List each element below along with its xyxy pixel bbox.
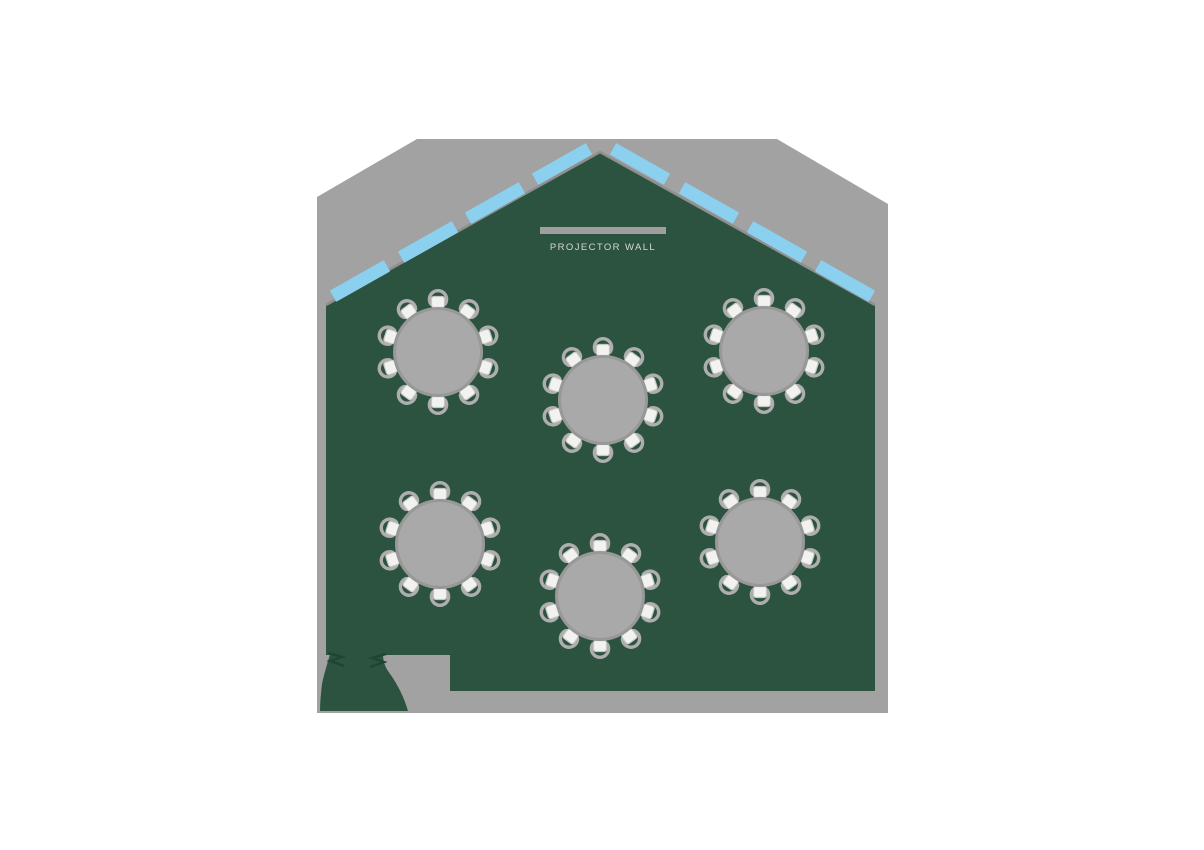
table-top xyxy=(717,499,804,586)
chair-seat xyxy=(597,345,610,356)
chair-seat xyxy=(594,641,607,652)
chair-seat xyxy=(754,587,767,598)
table-top xyxy=(397,501,484,588)
event-floor-plan: PROJECTOR WALL xyxy=(0,0,1204,850)
chair-seat xyxy=(597,445,610,456)
projector-wall-label: PROJECTOR WALL xyxy=(550,242,656,253)
chair-seat xyxy=(432,397,445,408)
floor-plan-canvas: PROJECTOR WALL xyxy=(0,0,1204,850)
chair-seat xyxy=(434,589,447,600)
table-top xyxy=(721,308,808,395)
chair-seat xyxy=(758,396,771,407)
chair-seat xyxy=(758,296,771,307)
chair-seat xyxy=(594,541,607,552)
chair-seat xyxy=(754,487,767,498)
table-top xyxy=(557,553,644,640)
projector-wall-bar xyxy=(540,227,666,234)
chair-seat xyxy=(432,297,445,308)
chair-seat xyxy=(434,489,447,500)
table-top xyxy=(395,309,482,396)
table-top xyxy=(560,357,647,444)
